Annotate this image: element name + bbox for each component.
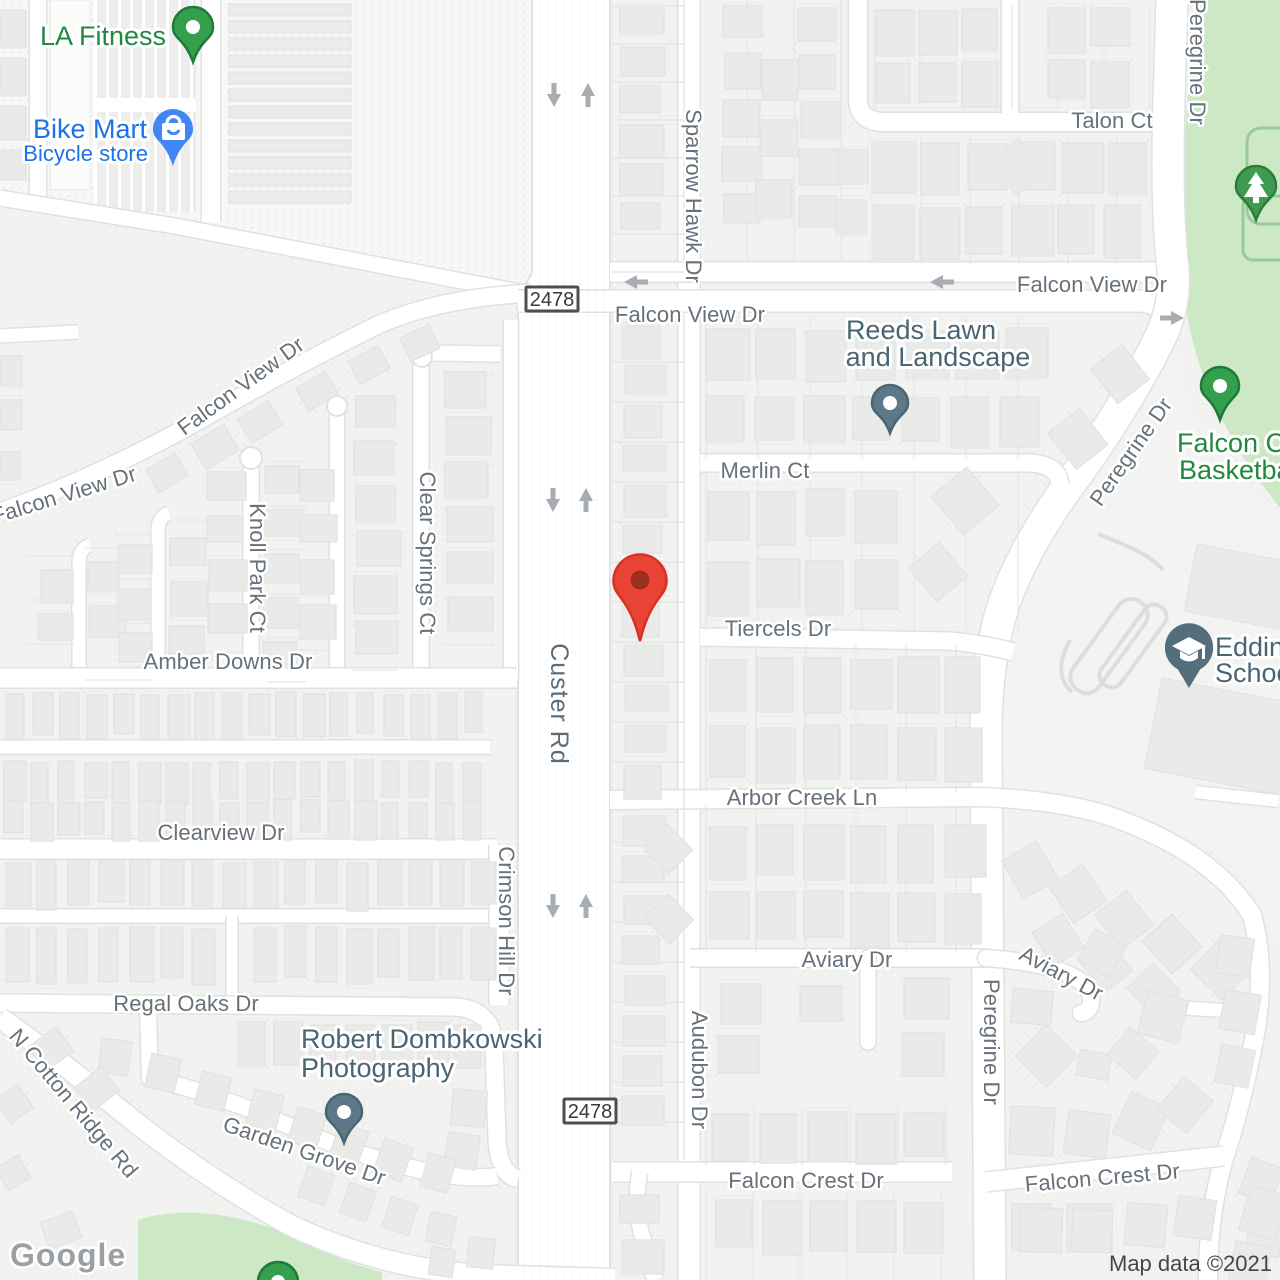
svg-text:Schoo: Schoo — [1215, 658, 1280, 688]
svg-text:Falcon Crest Dr: Falcon Crest Dr — [728, 1168, 884, 1193]
svg-text:Falcon C: Falcon C — [1177, 428, 1280, 458]
svg-text:and Landscape: and Landscape — [846, 342, 1031, 372]
svg-text:Reeds Lawn: Reeds Lawn — [846, 315, 996, 345]
svg-text:Crimson Hill Dr: Crimson Hill Dr — [494, 846, 519, 995]
svg-text:Bike Mart: Bike Mart — [33, 114, 148, 144]
svg-text:Peregrine Dr: Peregrine Dr — [1185, 0, 1210, 125]
svg-text:2478: 2478 — [530, 289, 575, 311]
svg-text:Custer Rd: Custer Rd — [545, 643, 573, 765]
svg-text:Robert Dombkowski: Robert Dombkowski — [301, 1024, 543, 1054]
svg-text:Falcon View Dr: Falcon View Dr — [615, 302, 765, 327]
svg-text:2478: 2478 — [568, 1101, 613, 1123]
svg-text:Photography: Photography — [301, 1053, 455, 1083]
svg-text:Sparrow Hawk Dr: Sparrow Hawk Dr — [681, 109, 706, 283]
svg-text:Aviary Dr: Aviary Dr — [802, 947, 893, 972]
svg-text:LA Fitness: LA Fitness — [40, 21, 166, 51]
svg-text:Basketba: Basketba — [1179, 455, 1280, 485]
svg-text:Clearview Dr: Clearview Dr — [157, 820, 284, 845]
svg-text:Talon Ct: Talon Ct — [1071, 108, 1153, 133]
svg-text:Merlin Ct: Merlin Ct — [721, 458, 810, 483]
svg-text:Arbor Creek Ln: Arbor Creek Ln — [727, 785, 878, 810]
svg-text:Peregrine Dr: Peregrine Dr — [979, 979, 1004, 1105]
svg-text:Audubon Dr: Audubon Dr — [687, 1011, 712, 1129]
svg-text:Knoll Park Ct: Knoll Park Ct — [245, 503, 270, 633]
svg-text:Tiercels Dr: Tiercels Dr — [725, 616, 832, 641]
svg-text:Falcon View Dr: Falcon View Dr — [1017, 272, 1167, 297]
svg-text:Clear Springs Ct: Clear Springs Ct — [415, 472, 440, 635]
svg-text:Regal Oaks Dr: Regal Oaks Dr — [113, 991, 259, 1016]
svg-text:Bicycle store: Bicycle store — [23, 141, 148, 166]
svg-text:Amber Downs Dr: Amber Downs Dr — [144, 649, 313, 674]
svg-text:Map data ©2021: Map data ©2021 — [1109, 1251, 1272, 1276]
svg-text:Google: Google — [10, 1237, 126, 1273]
